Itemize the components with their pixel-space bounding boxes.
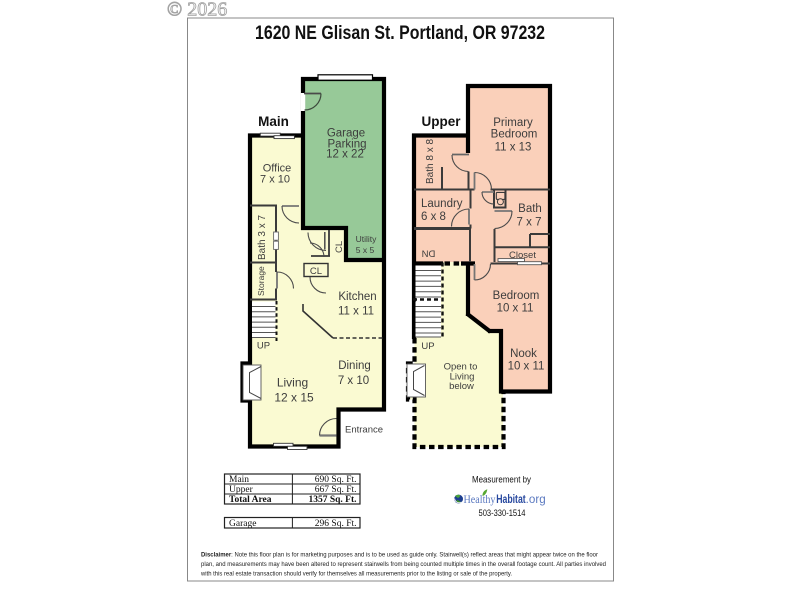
- svg-text:7 x 10: 7 x 10: [260, 174, 290, 186]
- svg-text:Main: Main: [229, 475, 249, 485]
- svg-text:Storage: Storage: [256, 266, 266, 296]
- svg-text:1620 NE Glisan St. Portland, O: 1620 NE Glisan St. Portland, OR 97232: [255, 23, 545, 44]
- svg-text:Habitat: Habitat: [496, 494, 526, 506]
- svg-text:.org: .org: [526, 494, 546, 506]
- svg-text:Upper: Upper: [229, 485, 254, 495]
- svg-text:296 Sq. Ft.: 296 Sq. Ft.: [315, 519, 357, 529]
- svg-text:Nook: Nook: [510, 348, 537, 360]
- svg-text:DN: DN: [422, 248, 436, 259]
- svg-text:Garage: Garage: [229, 519, 256, 529]
- svg-text:12 x 15: 12 x 15: [274, 391, 314, 405]
- svg-text:CL: CL: [310, 266, 322, 277]
- svg-text:Healthy: Healthy: [464, 492, 496, 506]
- svg-text:Bath: Bath: [518, 203, 542, 215]
- svg-text:10 x 11: 10 x 11: [508, 361, 545, 373]
- svg-text:503-330-1514: 503-330-1514: [479, 508, 526, 519]
- svg-text:Laundry: Laundry: [421, 198, 463, 210]
- svg-text:Closet: Closet: [509, 250, 536, 261]
- svg-text:© 2026: © 2026: [167, 0, 227, 21]
- svg-text:11 x 11: 11 x 11: [338, 306, 374, 318]
- svg-text:plan, and measurements may hav: plan, and measurements may have been alt…: [201, 561, 606, 568]
- svg-text:Bath 3 x 7: Bath 3 x 7: [257, 215, 268, 260]
- svg-text:6 x 8: 6 x 8: [421, 211, 446, 223]
- svg-text:667 Sq. Ft.: 667 Sq. Ft.: [315, 485, 357, 495]
- svg-text:Primary: Primary: [493, 117, 533, 129]
- svg-text:7 x 10: 7 x 10: [338, 375, 369, 387]
- svg-text:Dining: Dining: [338, 360, 371, 372]
- svg-text:7 x 7: 7 x 7: [517, 217, 542, 229]
- svg-text:11 x 13: 11 x 13: [495, 142, 532, 154]
- svg-text:CL: CL: [334, 241, 345, 253]
- svg-text:12 x 22: 12 x 22: [326, 149, 364, 161]
- svg-text:1357 Sq. Ft.: 1357 Sq. Ft.: [308, 495, 356, 505]
- svg-text:Living: Living: [277, 376, 308, 390]
- svg-text:UP: UP: [257, 341, 270, 352]
- svg-text:Kitchen: Kitchen: [338, 291, 376, 303]
- svg-text:Bedroom: Bedroom: [491, 129, 538, 141]
- svg-text:10 x 11: 10 x 11: [497, 303, 534, 315]
- svg-text:Main: Main: [258, 114, 289, 129]
- svg-text:Measurement by: Measurement by: [472, 475, 531, 486]
- svg-text:Entrance: Entrance: [345, 425, 383, 436]
- svg-text:Disclaimer: Note this floor pl: Disclaimer: Note this floor plan is for …: [201, 552, 599, 559]
- svg-text:Bedroom: Bedroom: [493, 290, 540, 302]
- svg-text:UP: UP: [421, 341, 434, 352]
- svg-text:Total Area: Total Area: [229, 495, 272, 505]
- svg-text:with this real estate transact: with this real estate transaction should…: [200, 571, 512, 578]
- svg-text:690 Sq. Ft.: 690 Sq. Ft.: [315, 475, 357, 485]
- svg-text:Upper: Upper: [422, 114, 462, 129]
- svg-text:5 x 5: 5 x 5: [356, 245, 375, 255]
- svg-text:below: below: [449, 381, 474, 392]
- svg-text:Utility: Utility: [356, 234, 378, 244]
- svg-text:Bath 8 x 8: Bath 8 x 8: [425, 139, 436, 184]
